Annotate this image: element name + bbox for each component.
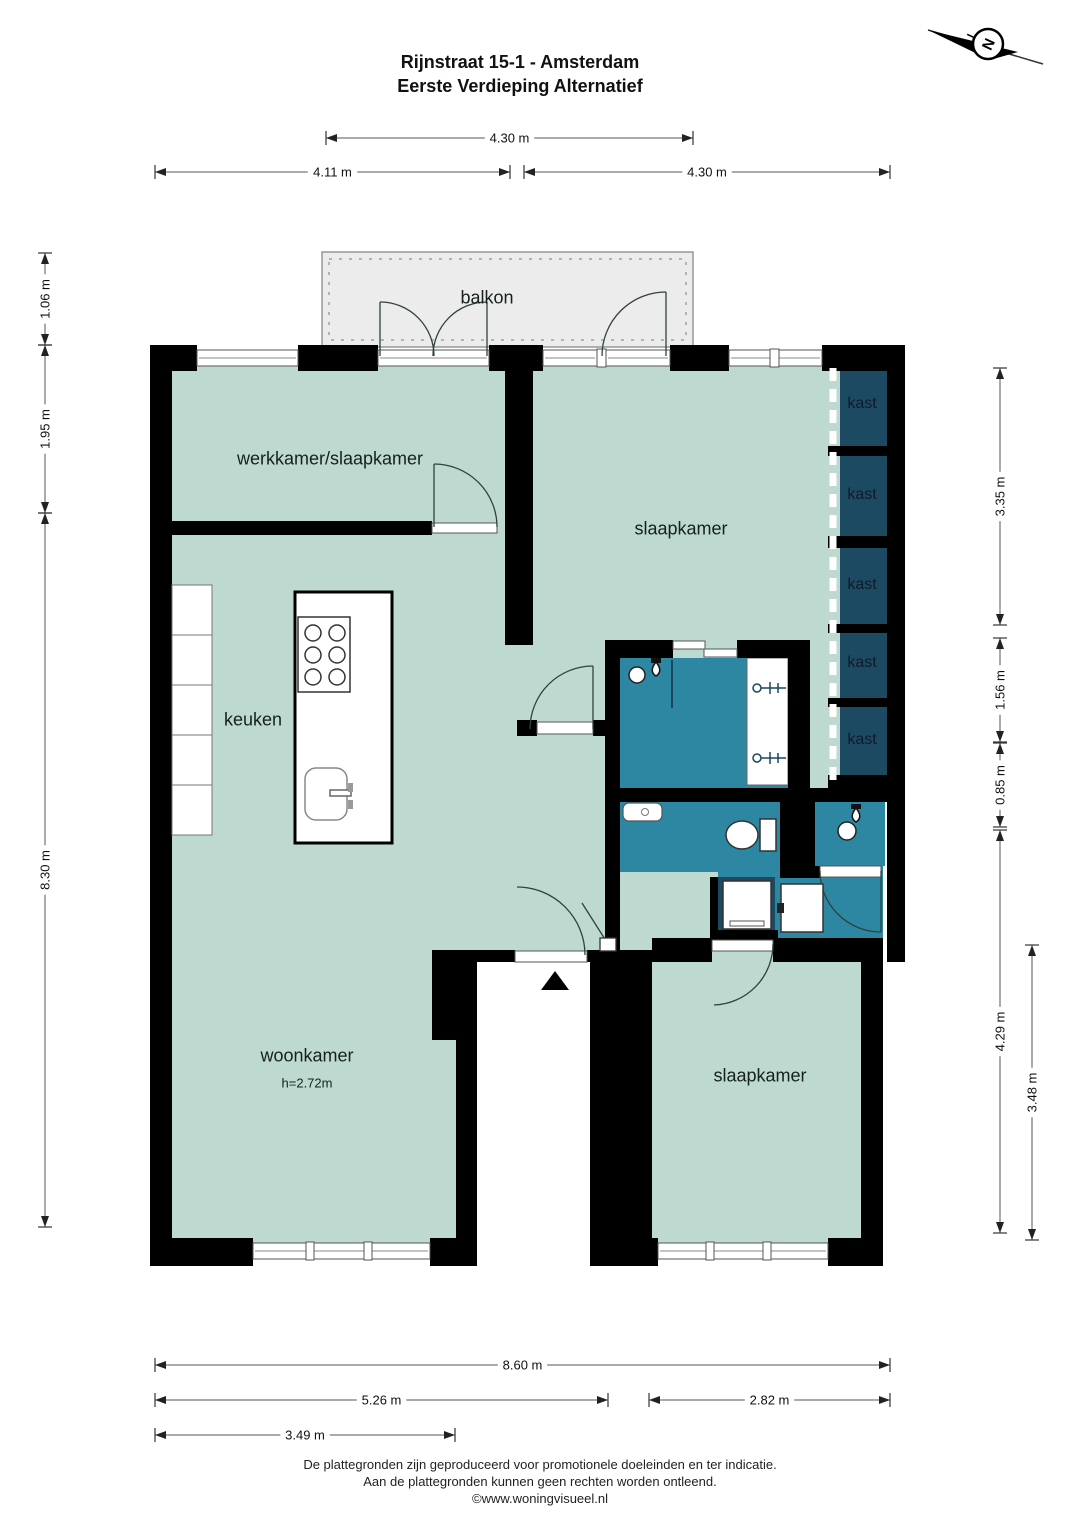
- room-label-kast-2: kast: [847, 486, 876, 504]
- dimension-h: 4.30 m: [326, 130, 693, 147]
- dimension-label: 4.30 m: [490, 131, 530, 146]
- bathroom-counter: [747, 658, 788, 785]
- room-label-slaapkamer-beneden: slaapkamer: [713, 1066, 806, 1087]
- room-label-woonkamer-hoogte: h=2.72m: [282, 1076, 333, 1091]
- toilet-bowl: [726, 821, 758, 849]
- dimension-label: 1.06 m: [38, 279, 53, 319]
- dimension-v: 4.29 m: [992, 830, 1009, 1233]
- footer-disclaimer: De plattegronden zijn geproduceerd voor …: [0, 1456, 1080, 1507]
- stairwell-void: [477, 962, 590, 1266]
- toilet-tank: [760, 819, 776, 851]
- kitchen-sink: [305, 768, 353, 820]
- dimension-v: 1.56 m: [992, 638, 1009, 742]
- dimension-label: 5.26 m: [362, 1393, 402, 1408]
- stove: [298, 617, 350, 692]
- dimension-v: 1.06 m: [37, 253, 54, 345]
- dimension-h: 4.11 m: [155, 164, 510, 181]
- footer-line1: De plattegronden zijn geproduceerd voor …: [0, 1456, 1080, 1473]
- room-label-werkkamer-slaapkamer: werkkamer/slaapkamer: [237, 449, 423, 470]
- floorplan-drawing: N 4.30 m4.11 m4.30 m8.60 m5.26 m2.82 m3.…: [0, 0, 1080, 1526]
- dimension-h: 4.30 m: [524, 164, 890, 181]
- floorplan-page: Rijnstraat 15-1 - Amsterdam Eerste Verdi…: [0, 0, 1080, 1526]
- room-label-kast-3: kast: [847, 576, 876, 594]
- dimension-h: 3.49 m: [155, 1427, 455, 1444]
- dimension-v: 8.30 m: [37, 513, 54, 1227]
- dimension-label: 1.56 m: [993, 670, 1008, 710]
- bathroom-sink: [629, 667, 645, 683]
- room-label-balkon: balkon: [460, 288, 513, 309]
- room-label-slaapkamer-boven: slaapkamer: [634, 519, 727, 540]
- kitchen-island: [295, 592, 392, 843]
- dimension-label: 4.30 m: [687, 165, 727, 180]
- toilet-sink: [623, 803, 662, 821]
- dimension-label: 2.82 m: [750, 1393, 790, 1408]
- dimension-v: 0.85 m: [992, 743, 1009, 827]
- room-label-keuken: keuken: [224, 710, 282, 731]
- footer-copyright: ©www.woningvisueel.nl: [0, 1490, 1080, 1507]
- dimension-label: 3.35 m: [993, 477, 1008, 517]
- dimension-label: 0.85 m: [993, 765, 1008, 805]
- washroom-sink: [838, 822, 856, 840]
- room-label-kast-1: kast: [847, 395, 876, 413]
- dimension-h: 5.26 m: [155, 1392, 608, 1409]
- dimension-h: 8.60 m: [155, 1357, 890, 1374]
- room-label-kast-5: kast: [847, 731, 876, 749]
- dimension-label: 4.11 m: [313, 165, 352, 180]
- dimension-h: 2.82 m: [649, 1392, 890, 1409]
- room-label-kast-4: kast: [847, 654, 876, 672]
- room-label-woonkamer: woonkamer: [260, 1046, 353, 1067]
- dimension-label: 8.30 m: [38, 850, 53, 890]
- footer-line2: Aan de plattegronden kunnen geen rechten…: [0, 1473, 1080, 1490]
- kitchen-counter: [172, 585, 212, 835]
- dimension-v: 1.95 m: [37, 345, 54, 513]
- dimension-label: 3.49 m: [285, 1428, 325, 1443]
- compass-icon: N: [928, 29, 1043, 64]
- dimension-v: 3.35 m: [992, 368, 1009, 625]
- fridge: [781, 884, 823, 932]
- dimension-label: 8.60 m: [503, 1358, 543, 1373]
- dimension-label: 3.48 m: [1025, 1073, 1040, 1113]
- dimension-label: 4.29 m: [993, 1012, 1008, 1052]
- dimension-v: 3.48 m: [1024, 945, 1041, 1240]
- dimension-label: 1.95 m: [38, 409, 53, 449]
